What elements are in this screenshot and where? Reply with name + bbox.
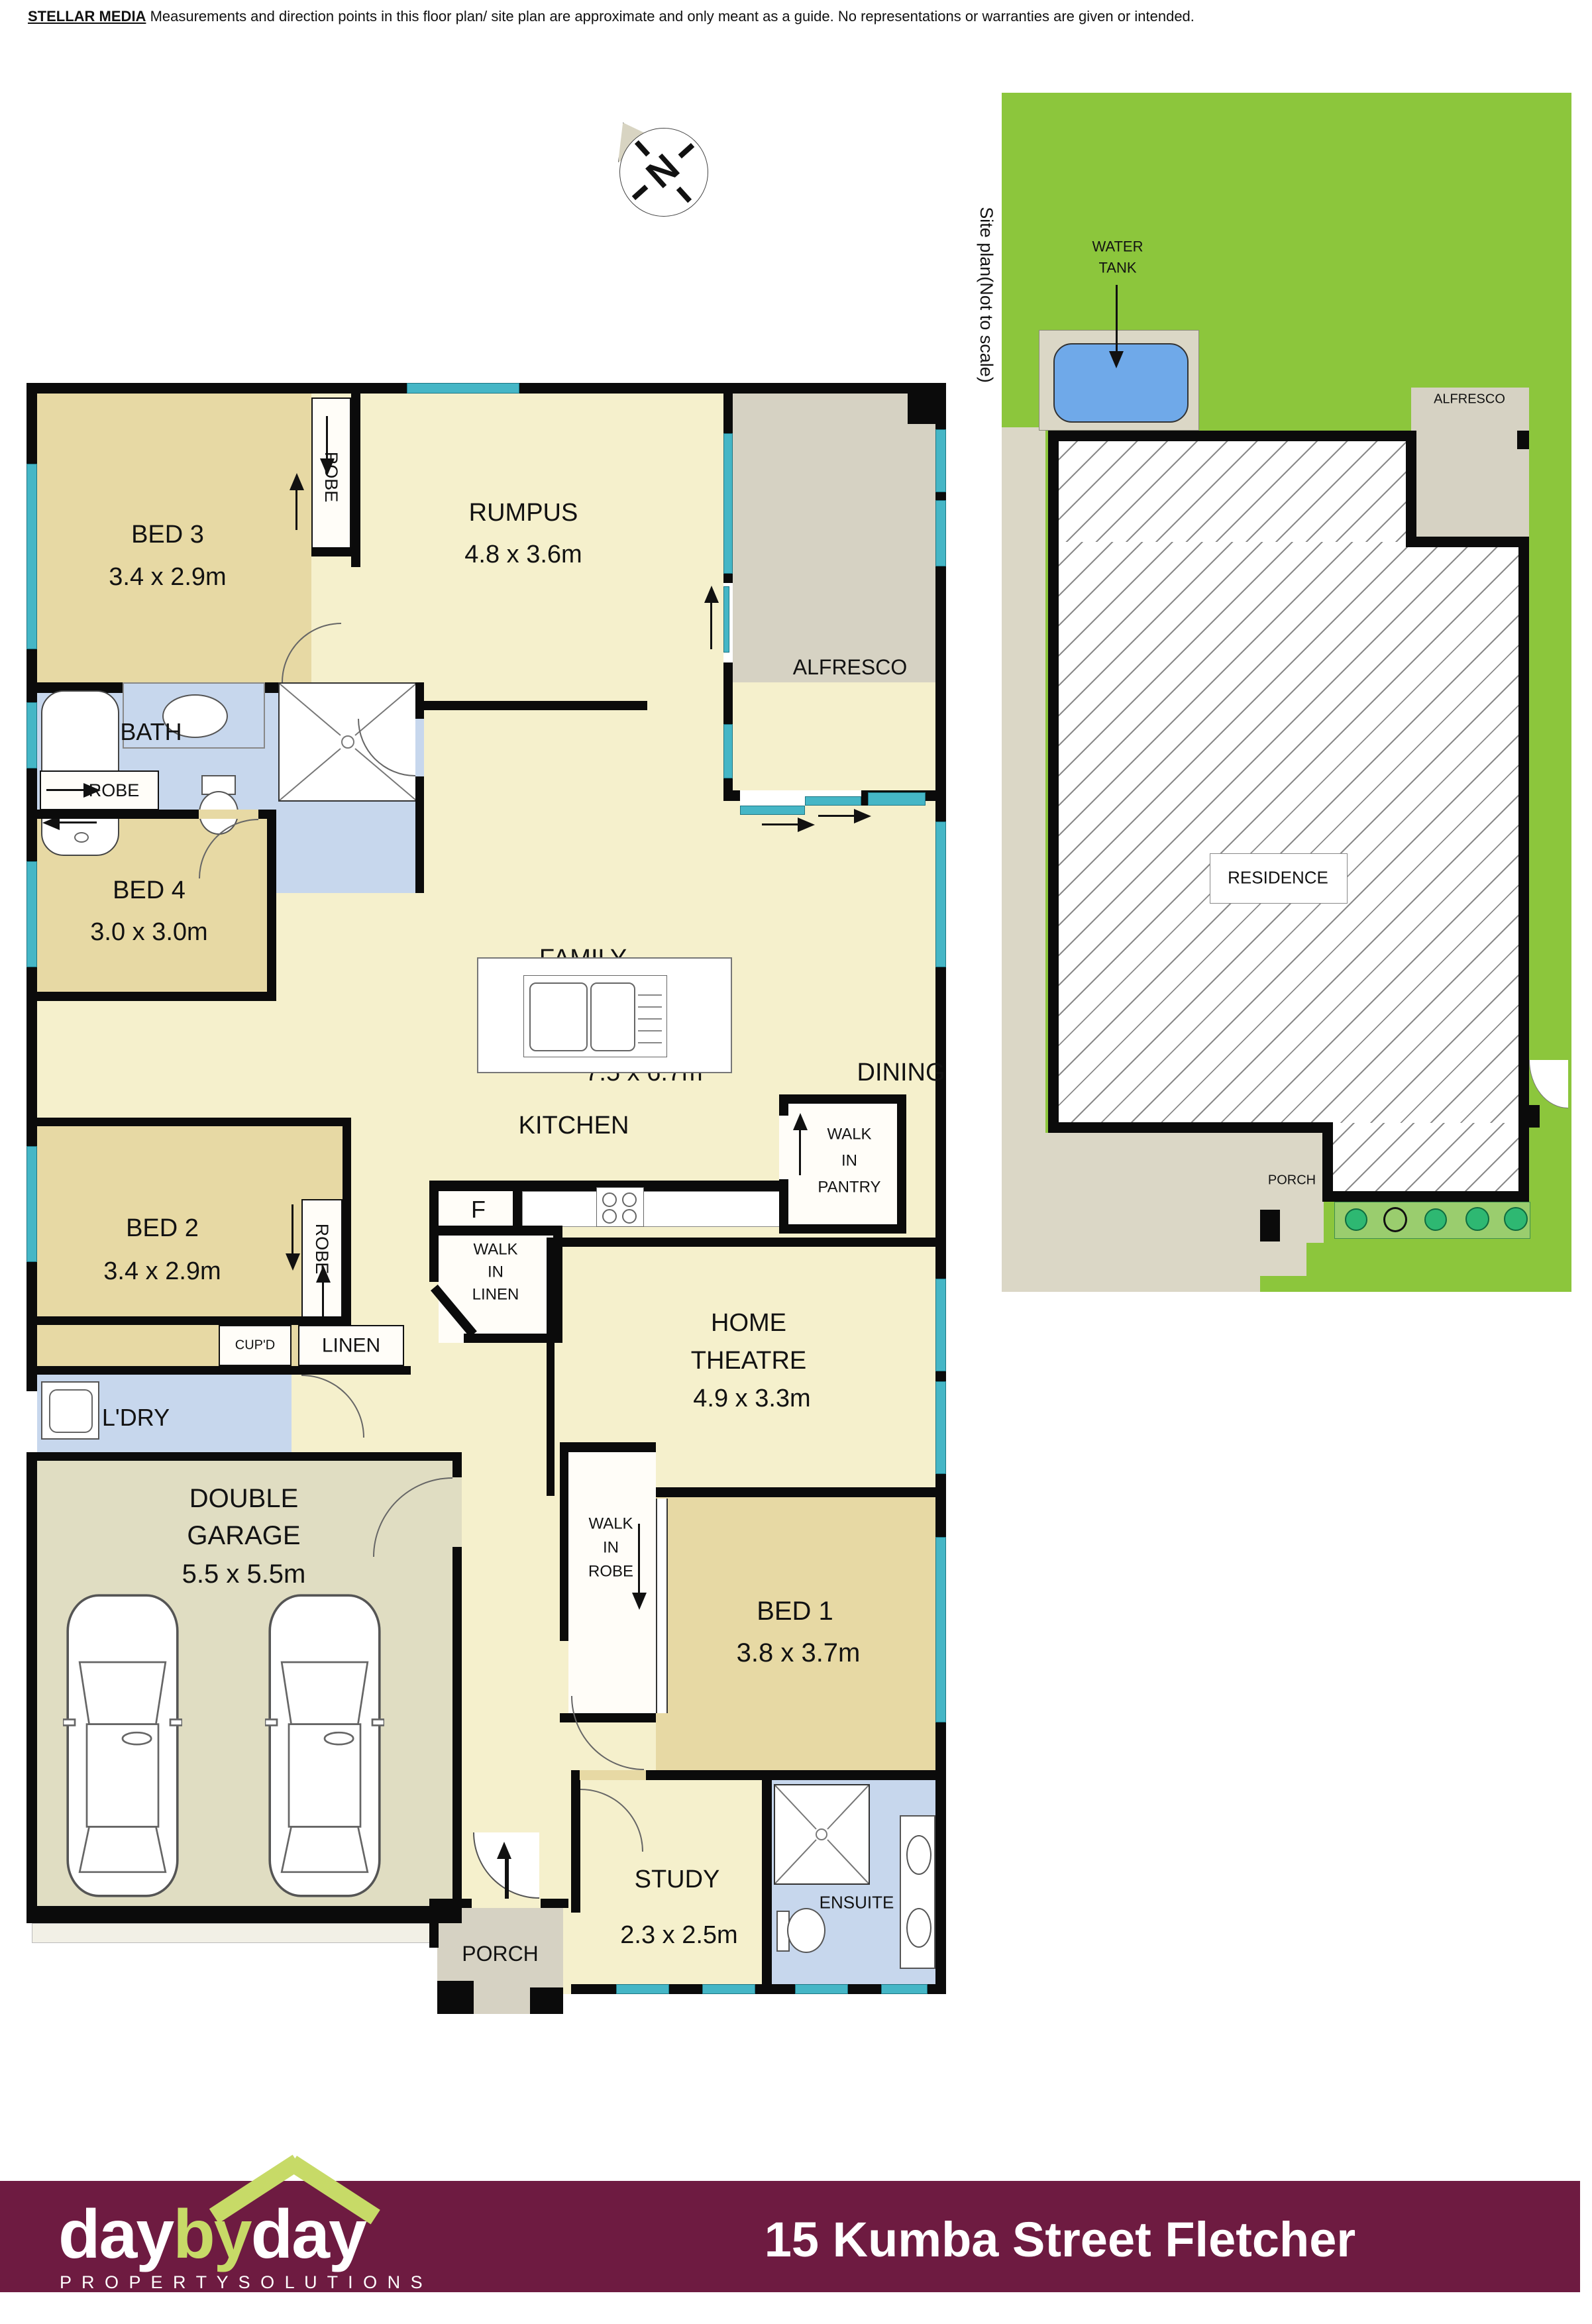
sliding-door-track xyxy=(656,1499,668,1713)
window xyxy=(935,1279,946,1371)
compass-tick-icon xyxy=(635,140,650,157)
window xyxy=(407,383,519,394)
wall xyxy=(723,394,733,433)
window xyxy=(935,1537,946,1722)
wall xyxy=(897,1094,906,1234)
window xyxy=(935,500,946,566)
window xyxy=(702,1984,755,1994)
bed4-dims: 3.0 x 3.0m xyxy=(90,920,207,946)
site-path xyxy=(1002,427,1045,1292)
slide-arrow-icon xyxy=(818,815,857,817)
wall xyxy=(723,574,733,583)
wall xyxy=(779,1224,906,1234)
slide-arrow-icon xyxy=(798,818,815,832)
disclaimer-brand: STELLAR MEDIA xyxy=(28,8,146,25)
wall xyxy=(571,1780,580,1913)
water-tank-label: WATER xyxy=(1092,238,1143,254)
site-wall xyxy=(1518,537,1529,1202)
bed4-label: BED 4 xyxy=(113,878,186,904)
wall xyxy=(560,1442,568,1641)
entry-arrow-icon xyxy=(497,1842,511,1859)
walk-in-robe-label: ROBE xyxy=(588,1563,633,1579)
window xyxy=(27,861,37,967)
wall xyxy=(267,810,276,1000)
logo-day1: day xyxy=(58,2196,173,2273)
cooktop-icon xyxy=(596,1187,644,1227)
site-residence-area xyxy=(1053,542,1518,1123)
bathtub-drain-icon xyxy=(74,832,89,843)
sliding-door-panel xyxy=(740,806,805,815)
walk-in-linen-label: WALK xyxy=(473,1241,517,1257)
laundry-label: L'DRY xyxy=(102,1405,170,1430)
theatre-label: THEATRE xyxy=(691,1348,807,1375)
bed2-label: BED 2 xyxy=(126,1216,199,1242)
slide-arrow-icon xyxy=(295,484,297,530)
entry-arrow-icon xyxy=(505,1859,509,1899)
compass-tick-icon xyxy=(632,185,649,200)
plant-icon xyxy=(1383,1207,1407,1232)
shower-icon xyxy=(774,1784,870,1885)
property-address: 15 Kumba Street Fletcher xyxy=(629,2211,1491,2268)
water-tank-label: TANK xyxy=(1098,260,1136,275)
site-wall xyxy=(1322,1122,1333,1202)
site-wall xyxy=(1048,431,1411,441)
daybyday-logo: daybyday P R O P E R T Y S O L U T I O N… xyxy=(58,2184,562,2290)
wall xyxy=(429,1226,562,1236)
door-gap xyxy=(580,1770,646,1780)
sliding-door-panel xyxy=(805,796,861,806)
door-gap xyxy=(199,810,258,819)
kitchen-label: KITCHEN xyxy=(519,1113,629,1139)
wall xyxy=(27,383,723,394)
wall xyxy=(547,1238,555,1496)
door-arrow-icon xyxy=(799,1122,801,1175)
site-residence-area xyxy=(1325,1123,1518,1196)
wall xyxy=(723,662,733,724)
window xyxy=(27,1146,37,1262)
site-alfresco-area xyxy=(1411,388,1529,537)
walk-in-robe-label: WALK xyxy=(588,1515,633,1532)
pantry-label: WALK xyxy=(827,1126,871,1142)
room-bed1 xyxy=(656,1497,935,1770)
walk-in-linen-label: LINEN xyxy=(472,1286,519,1302)
window xyxy=(616,1984,669,1994)
kitchen-bench xyxy=(522,1191,788,1227)
slide-arrow-icon xyxy=(46,789,86,791)
wall xyxy=(647,1487,935,1497)
slide-arrow-icon xyxy=(710,596,712,649)
wall xyxy=(351,394,360,567)
study-label: STUDY xyxy=(635,1867,720,1893)
alfresco-label: ALFRESCO xyxy=(793,657,907,679)
walk-in-linen-label: IN xyxy=(488,1263,504,1280)
front-door-gap xyxy=(472,1899,541,1908)
door-arrow-icon xyxy=(632,1593,647,1610)
door-gap xyxy=(452,1477,462,1547)
site-wall xyxy=(1529,1105,1540,1128)
door-gap xyxy=(415,719,424,776)
slide-arrow-icon xyxy=(290,473,304,490)
wall xyxy=(27,1366,411,1375)
window xyxy=(723,433,733,574)
wall xyxy=(415,682,424,893)
pantry-label: IN xyxy=(841,1152,857,1169)
window xyxy=(935,429,946,492)
laundry-door-gap xyxy=(27,1391,37,1454)
compass: N xyxy=(613,123,716,225)
slide-arrow-icon xyxy=(854,809,871,823)
garage-dims: 5.5 x 5.5m xyxy=(182,1560,306,1588)
wall xyxy=(723,778,733,801)
logo-by: by xyxy=(173,2196,250,2273)
window xyxy=(27,464,37,649)
wall xyxy=(429,1181,522,1191)
study-dims: 2.3 x 2.5m xyxy=(620,1923,737,1949)
wall xyxy=(27,1452,462,1461)
bed3-dims: 3.4 x 2.9m xyxy=(109,564,226,591)
plant-icon xyxy=(1504,1207,1528,1231)
island-sink-icon xyxy=(523,975,667,1057)
compass-tick-icon xyxy=(678,143,695,158)
wall xyxy=(311,547,360,556)
dining-label: DINING xyxy=(857,1060,945,1086)
bath-label: BATH xyxy=(120,719,182,745)
slide-arrow-icon xyxy=(83,783,101,798)
wall xyxy=(27,992,276,1001)
slide-arrow-icon xyxy=(316,1265,331,1283)
wall xyxy=(560,1442,656,1452)
wall xyxy=(429,1908,439,1948)
site-wall xyxy=(1260,1210,1280,1241)
bed1-label: BED 1 xyxy=(757,1597,833,1625)
bed3-label: BED 3 xyxy=(131,522,204,549)
wall xyxy=(762,1780,772,1985)
wall xyxy=(861,790,868,806)
car-icon xyxy=(63,1590,182,1905)
wall xyxy=(32,1906,462,1923)
wall xyxy=(530,1987,563,2014)
laundry-tub-icon xyxy=(41,1381,99,1440)
rumpus-label: RUMPUS xyxy=(469,500,578,527)
plant-icon xyxy=(1345,1208,1367,1231)
fridge-label: F xyxy=(471,1197,486,1222)
site-alfresco-label: ALFRESCO xyxy=(1434,393,1505,407)
pantry-label: PANTRY xyxy=(818,1179,880,1195)
site-residence-area xyxy=(1053,436,1406,542)
slide-arrow-icon xyxy=(286,1253,300,1271)
window xyxy=(723,724,733,778)
plant-icon xyxy=(1465,1207,1489,1231)
wall xyxy=(27,1316,351,1325)
door-gap xyxy=(779,1116,788,1179)
compass-tick-icon xyxy=(676,187,692,203)
wall xyxy=(437,1981,474,2014)
ensuite-label: ENSUITE xyxy=(820,1893,894,1911)
sliding-door-panel xyxy=(723,586,729,653)
garage-label: DOUBLE xyxy=(189,1485,299,1512)
logo-day2: day xyxy=(251,2196,366,2273)
wall xyxy=(547,1238,935,1247)
vanity-counter xyxy=(900,1815,935,1969)
slide-arrow-icon xyxy=(704,586,719,603)
wall xyxy=(429,1236,439,1282)
disclaimer-text: Measurements and direction points in thi… xyxy=(146,8,1194,25)
wall xyxy=(415,701,647,710)
linen-label: LINEN xyxy=(322,1335,380,1356)
site-porch-label: PORCH xyxy=(1268,1174,1316,1188)
theatre-label: HOME xyxy=(711,1310,786,1337)
bed1-dims: 3.8 x 3.7m xyxy=(737,1639,861,1667)
site-plan-title: Site plan(Not to scale) xyxy=(977,207,996,383)
site-walkway-step xyxy=(1260,1243,1306,1276)
slide-arrow-icon xyxy=(762,823,800,825)
wall xyxy=(779,1094,906,1104)
site-wall xyxy=(1517,431,1529,449)
walk-in-robe-label: IN xyxy=(603,1539,619,1556)
disclaimer: STELLAR MEDIA Measurements and direction… xyxy=(28,8,1578,25)
site-residence-label: RESIDENCE xyxy=(1228,869,1328,886)
garage-driveway-strip xyxy=(32,1923,431,1943)
floorplan-page: STELLAR MEDIA Measurements and direction… xyxy=(0,0,1592,2324)
theatre-dims: 4.9 x 3.3m xyxy=(693,1386,810,1412)
site-wall xyxy=(1048,1122,1333,1133)
site-wall xyxy=(1406,431,1416,542)
cupboard-label: CUP'D xyxy=(235,1339,276,1353)
site-wall xyxy=(1406,537,1529,547)
door-arrow-icon xyxy=(793,1113,808,1130)
window xyxy=(881,1984,928,1994)
site-wall xyxy=(1048,431,1059,1133)
window xyxy=(935,1381,946,1474)
site-wall xyxy=(1322,1191,1529,1202)
bed2-dims: 3.4 x 2.9m xyxy=(103,1259,221,1285)
garage-label: GARAGE xyxy=(187,1522,300,1550)
site-driveway xyxy=(1045,1133,1260,1292)
window xyxy=(27,702,37,768)
walk-in-robe xyxy=(568,1452,656,1717)
wall xyxy=(27,1118,351,1126)
slide-arrow-icon xyxy=(320,458,335,476)
slide-arrow-icon xyxy=(57,821,97,823)
logo-tagline: P R O P E R T Y S O L U T I O N S xyxy=(60,2272,425,2293)
window xyxy=(795,1984,848,1994)
slide-arrow-icon xyxy=(292,1204,293,1257)
wall xyxy=(522,1181,788,1191)
plant-icon xyxy=(1424,1208,1447,1231)
window xyxy=(935,821,946,967)
slide-arrow-icon xyxy=(326,416,328,462)
window xyxy=(868,792,926,806)
car-icon xyxy=(265,1590,384,1905)
water-tank-arrow-icon xyxy=(1109,351,1124,368)
rumpus-dims: 4.8 x 3.6m xyxy=(464,542,582,568)
door-arrow-icon xyxy=(638,1524,640,1597)
porch-label: PORCH xyxy=(462,1943,539,1966)
water-tank-arrow-icon xyxy=(1116,285,1118,351)
